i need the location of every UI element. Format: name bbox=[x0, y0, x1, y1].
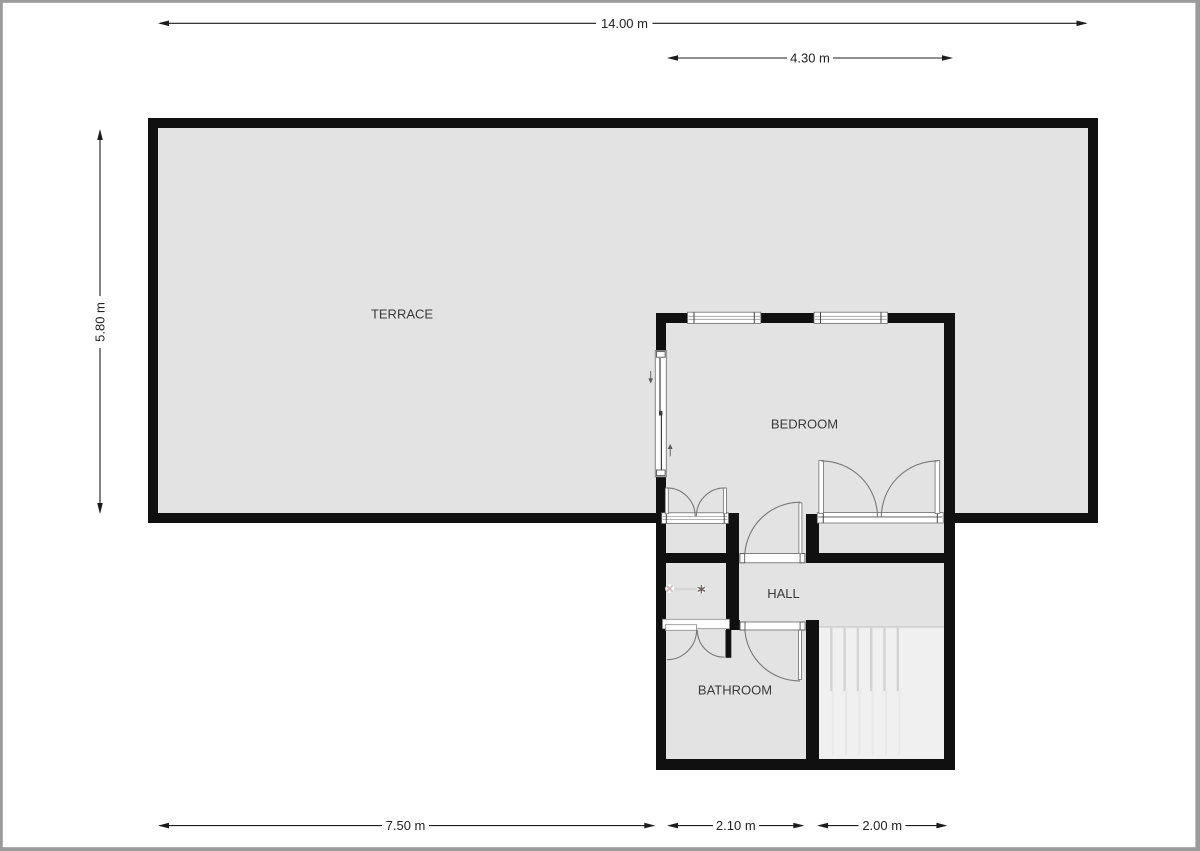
svg-text:BATHROOM: BATHROOM bbox=[698, 683, 772, 698]
svg-text:4.30 m: 4.30 m bbox=[790, 51, 830, 66]
svg-text:14.00 m: 14.00 m bbox=[601, 16, 648, 31]
svg-text:TERRACE: TERRACE bbox=[371, 307, 433, 322]
svg-text:2.10 m: 2.10 m bbox=[716, 818, 756, 833]
svg-text:HALL: HALL bbox=[767, 586, 800, 601]
svg-text:2.00 m: 2.00 m bbox=[862, 818, 902, 833]
svg-text:5.80 m: 5.80 m bbox=[92, 302, 107, 342]
svg-text:7.50 m: 7.50 m bbox=[386, 818, 426, 833]
svg-text:BEDROOM: BEDROOM bbox=[771, 416, 838, 431]
